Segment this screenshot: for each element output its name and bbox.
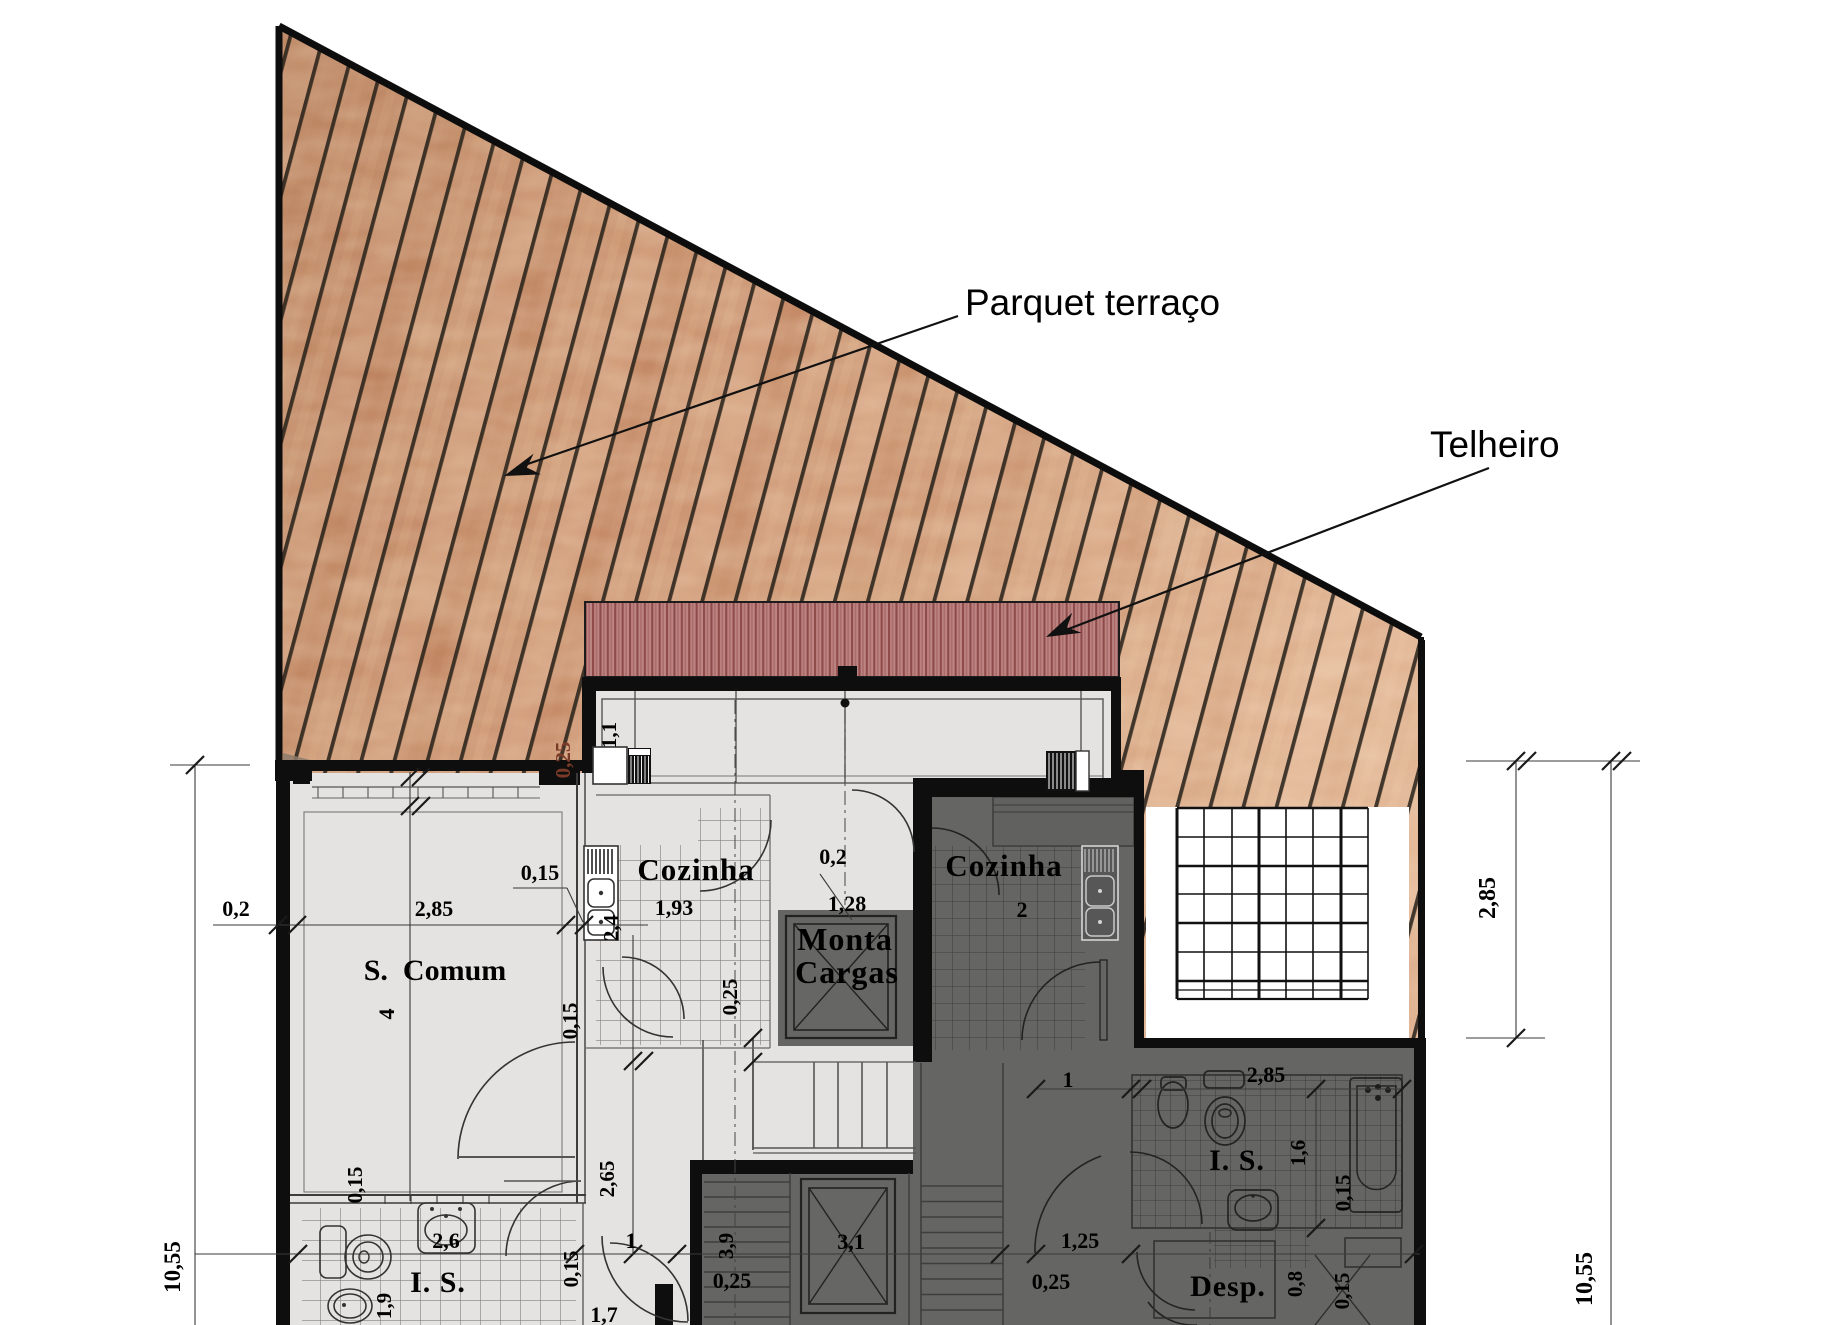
svg-text:Cozinha: Cozinha: [637, 852, 754, 887]
svg-text:2,85: 2,85: [415, 896, 454, 921]
svg-text:Cozinha: Cozinha: [945, 848, 1062, 883]
svg-text:2,85: 2,85: [1475, 877, 1501, 919]
svg-text:0,25: 0,25: [713, 1268, 752, 1293]
svg-text:2,4: 2,4: [599, 914, 623, 941]
svg-text:0,25: 0,25: [1032, 1269, 1071, 1294]
svg-text:1,28: 1,28: [828, 891, 867, 916]
svg-text:0,2: 0,2: [222, 896, 250, 921]
svg-text:0,15: 0,15: [521, 860, 560, 885]
svg-text:1: 1: [626, 1228, 637, 1253]
svg-text:1,6: 1,6: [1286, 1140, 1310, 1166]
svg-text:2,6: 2,6: [432, 1228, 460, 1253]
svg-text:1,25: 1,25: [1061, 1228, 1100, 1253]
svg-text:0,15: 0,15: [343, 1167, 367, 1204]
svg-text:Telheiro: Telheiro: [1430, 424, 1560, 465]
svg-text:0,8: 0,8: [1283, 1271, 1307, 1297]
svg-text:0,25: 0,25: [718, 979, 742, 1016]
svg-text:0,15: 0,15: [1330, 1273, 1354, 1310]
svg-text:3,9: 3,9: [714, 1233, 738, 1259]
svg-text:3,1: 3,1: [837, 1229, 865, 1254]
svg-text:Desp.: Desp.: [1190, 1270, 1266, 1303]
svg-text:0,25: 0,25: [551, 742, 575, 779]
svg-text:I. S.: I. S.: [1209, 1144, 1265, 1177]
svg-text:10,55: 10,55: [1572, 1252, 1598, 1306]
svg-text:1,9: 1,9: [372, 1293, 396, 1319]
svg-text:1,7: 1,7: [590, 1302, 618, 1325]
svg-text:2: 2: [1017, 897, 1028, 922]
svg-text:I. S.: I. S.: [410, 1266, 466, 1299]
svg-text:Monta: Monta: [797, 921, 893, 957]
svg-text:0,15: 0,15: [558, 1003, 582, 1040]
svg-text:10,55: 10,55: [160, 1241, 185, 1293]
svg-text:4: 4: [374, 1009, 399, 1020]
svg-text:1,1: 1,1: [597, 722, 621, 748]
svg-text:1,93: 1,93: [655, 895, 694, 920]
svg-text:Cargas: Cargas: [795, 954, 899, 990]
svg-text:2,85: 2,85: [1247, 1062, 1286, 1087]
svg-text:Parquet terraço: Parquet terraço: [965, 282, 1220, 323]
svg-text:S. Comum: S. Comum: [364, 954, 507, 987]
svg-text:2,65: 2,65: [595, 1161, 619, 1198]
svg-text:0,15: 0,15: [559, 1251, 583, 1288]
svg-text:0,2: 0,2: [819, 844, 847, 869]
svg-text:1: 1: [1063, 1067, 1074, 1092]
svg-text:0,15: 0,15: [1331, 1175, 1355, 1212]
